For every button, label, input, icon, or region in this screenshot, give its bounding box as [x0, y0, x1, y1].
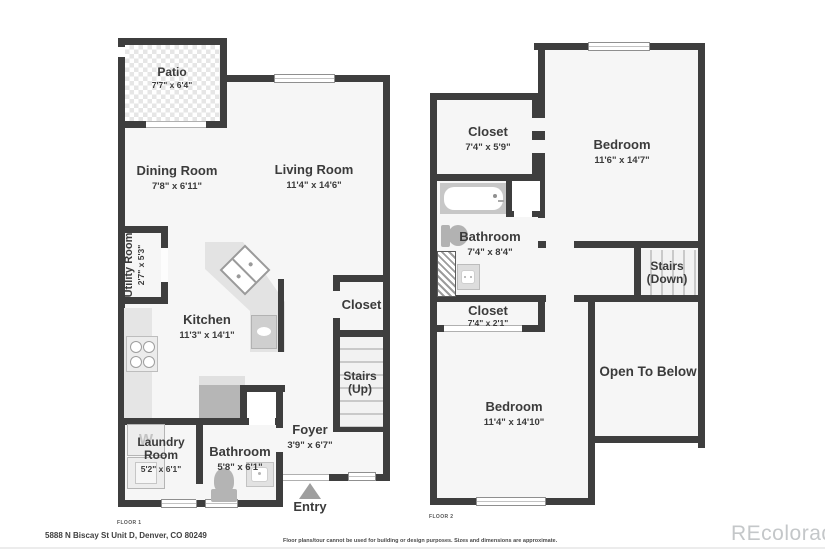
fridge-top [199, 376, 245, 385]
room-dims: 7'8" x 6'11" [117, 181, 237, 192]
room-dims: 2'7" x 5'3" [136, 225, 146, 305]
bedroom-top-window [588, 42, 650, 51]
bottom-divider [0, 547, 825, 549]
room-name: Closet [434, 304, 542, 317]
disclaimer-text: Floor plans/tour cannot be used for buil… [283, 538, 563, 544]
burner-icon [143, 356, 155, 368]
bedroom-top-door-opening [546, 241, 574, 248]
bathtub-handle-icon [498, 200, 504, 202]
room-dims: 11'6" x 14'7" [562, 155, 682, 166]
room-label-kitchen: Kitchen 11'3" x 14'1" [147, 313, 267, 341]
watermark-logo: REcolorado [731, 522, 825, 546]
bathtub-surround [440, 183, 508, 214]
room-dims: 7'4" x 2'1" [434, 318, 542, 328]
room-label-living: Living Room 11'4" x 14'6" [254, 163, 374, 191]
room-label-patio: Patio 7'7" x 6'4" [132, 66, 212, 90]
room-name: Bathroom [430, 230, 550, 245]
room-name: Foyer [270, 423, 350, 438]
room-name: Kitchen [147, 313, 267, 328]
sink-drain-icon [236, 274, 242, 280]
burner-icon [130, 341, 142, 353]
closet-top-wall-top [430, 93, 545, 100]
room-name: Living Room [254, 163, 374, 178]
linen-closet-interior [508, 181, 540, 212]
room-name: Entry [275, 500, 345, 515]
bathtub-faucet-icon [493, 194, 497, 198]
room-label-foyer: Foyer 3'9" x 6'7" [270, 423, 350, 451]
bedroom-bottom-door-opening [546, 295, 574, 302]
room-label-closet-top: Closet 7'4" x 5'9" [434, 125, 542, 153]
laundry-block-wall-bottom [118, 500, 283, 507]
room-name: Bedroom [454, 400, 574, 415]
room-name: Utility Room [123, 225, 135, 305]
room-label-closet-mid: Closet 7'4" x 2'1" [434, 304, 542, 328]
room-dims: 7'4" x 8'4" [430, 247, 550, 258]
room-name: Dining Room [117, 164, 237, 179]
kitchen-wall-stub [278, 279, 284, 352]
stove [126, 336, 158, 372]
room-dims: 11'4" x 14'6" [254, 180, 374, 191]
sink-drain-icon [248, 262, 254, 268]
bathroom2-vanity [457, 264, 480, 290]
toilet-tank [211, 489, 237, 502]
patio-wall-top [118, 38, 227, 45]
living-room-window [274, 74, 335, 83]
floor1-tag: FLOOR 1 [117, 520, 141, 526]
burner-icon [130, 356, 142, 368]
floor2-tag: FLOOR 2 [429, 514, 453, 520]
sink-divider [233, 259, 257, 283]
room-label-closet1: Closet [333, 298, 390, 313]
room-label-dining: Dining Room 7'8" x 6'11" [117, 164, 237, 192]
room-label-open-to-below: Open To Below [583, 364, 713, 379]
bedroom-bottom-window [476, 497, 546, 506]
floor-plan-canvas: W Patio 7'7" x 6'4" Dining Room 7'8" x 6… [0, 0, 825, 550]
room-sub: (Down) [632, 273, 702, 286]
room-dims: 7'4" x 5'9" [434, 142, 542, 153]
room-name: Patio [132, 66, 212, 79]
room-label-bedroom-top: Bedroom 11'6" x 14'7" [562, 138, 682, 166]
burner-icon [143, 341, 155, 353]
patio-wall-notch [118, 47, 125, 57]
patio-wall-right [220, 38, 227, 128]
room-name: Stairs [632, 260, 702, 273]
room-dims: 11'4" x 14'10" [454, 417, 574, 428]
laundry-window [161, 499, 197, 508]
room-label-utility: Utility Room 2'7" x 5'3" [123, 225, 163, 305]
otb-wall-bottom [595, 436, 705, 443]
room-dims: 11'3" x 14'1" [147, 330, 267, 341]
fridge [199, 385, 245, 419]
closet1-wall-top [333, 275, 390, 282]
closet1-stairs-divider [333, 330, 390, 337]
room-name: Closet [333, 298, 390, 313]
room-label-bathroom2: Bathroom 7'4" x 8'4" [430, 230, 550, 258]
room-name: Stairs [330, 370, 390, 383]
room-dims: 3'9" x 6'7" [270, 440, 350, 451]
entry-arrow-icon [299, 483, 321, 499]
room-name: Closet [434, 125, 542, 140]
closet-top-wall-bottom [430, 174, 545, 181]
vanity-drain-icon [464, 276, 466, 278]
bedroom-top-wall-left-upper [538, 43, 545, 100]
linen-closet-door-opening [514, 211, 532, 217]
bedroom-otb-divider [588, 302, 595, 505]
patio-sliding-door [146, 121, 206, 128]
entry-label: Entry [275, 500, 345, 515]
foyer-window [348, 472, 376, 481]
room-dims: 7'7" x 6'4" [132, 80, 212, 90]
room-label-stairs-down: Stairs (Down) [632, 260, 702, 287]
shower [437, 251, 456, 297]
vanity-drain-icon [470, 276, 472, 278]
room-name: Bedroom [562, 138, 682, 153]
room-label-stairs-up: Stairs (Up) [330, 370, 390, 397]
entry-door-opening [283, 474, 329, 481]
floor1-living-top-fill [227, 80, 383, 130]
address-text: 5888 N Biscay St Unit D, Denver, CO 8024… [45, 531, 207, 540]
room-name: Open To Below [583, 364, 713, 379]
room-dims: 5'8" x 6'1" [180, 462, 300, 473]
room-label-bedroom-bottom: Bedroom 11'4" x 14'10" [454, 400, 574, 428]
bathtub [444, 187, 503, 210]
laundry-door-opening [196, 484, 203, 500]
room-sub: (Up) [330, 383, 390, 396]
